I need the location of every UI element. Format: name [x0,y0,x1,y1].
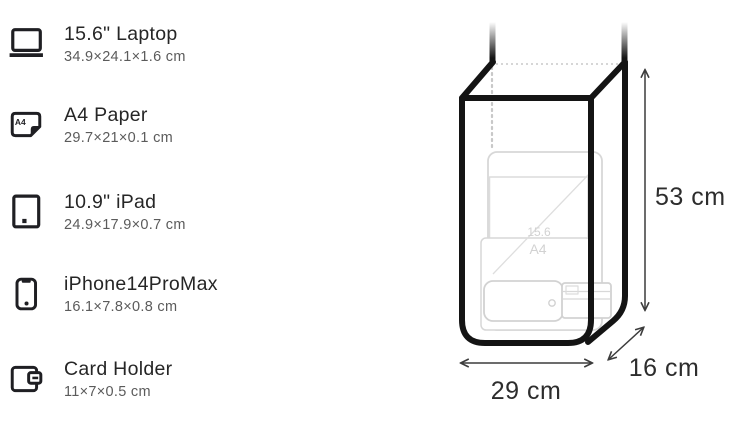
item-dimensions: 24.9×17.9×0.7 cm [64,217,186,233]
ghost-a4-label: A4 [529,241,546,257]
bag-straps [493,22,625,64]
bag-hidden-edges [492,64,621,150]
ipad-icon [8,194,44,230]
width-dimension-label: 29 cm [491,377,562,405]
ghost-phone [484,281,563,321]
item-dimensions: 16.1×7.8×0.8 cm [64,299,218,315]
ghost-card-holder [562,283,611,318]
item-dimensions: 34.9×24.1×1.6 cm [64,49,186,65]
item-dimensions: 11×7×0.5 cm [64,384,172,400]
laptop-icon [8,26,44,62]
item-label: A4 Paper [64,104,173,126]
item-label: 15.6" Laptop [64,23,186,45]
list-item-iphone: iPhone14ProMax 16.1×7.8×0.8 cm [8,270,218,318]
bag-capacity-panel: 15.6" Laptop 34.9×24.1×1.6 cm A4 A4 Pape… [0,0,750,426]
item-label: 10.9" iPad [64,191,186,213]
list-item-a4-paper: A4 A4 Paper 29.7×21×0.1 cm [8,101,173,149]
height-dimension-label: 53 cm [655,183,726,211]
a4-badge-text: A4 [15,117,26,127]
ghost-laptop-label: 15.6 [527,225,551,239]
a4-paper-icon: A4 [8,107,44,143]
item-label: Card Holder [64,358,172,380]
depth-dimension-label: 16 cm [629,354,700,382]
list-item-card-holder: Card Holder 11×7×0.5 cm [8,355,172,403]
iphone-icon [8,276,44,312]
bag-dimension-diagram: 15.6 A4 53 cm 29 cm 16 cm [420,0,750,426]
list-item-ipad: 10.9" iPad 24.9×17.9×0.7 cm [8,188,186,236]
item-label: iPhone14ProMax [64,273,218,295]
list-item-laptop: 15.6" Laptop 34.9×24.1×1.6 cm [8,20,186,68]
item-dimensions: 29.7×21×0.1 cm [64,130,173,146]
card-holder-icon [8,361,44,397]
